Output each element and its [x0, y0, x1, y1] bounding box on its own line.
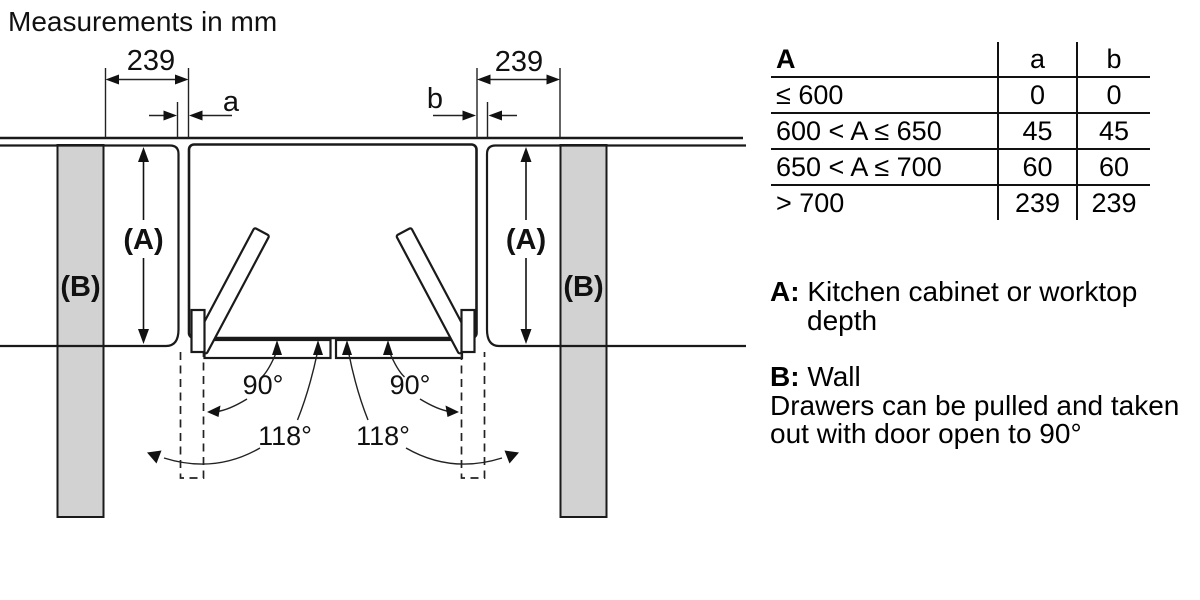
range-cell: 600 < A ≤ 650 — [771, 113, 998, 149]
table-row: > 700 239 239 — [771, 185, 1150, 220]
wall-label-right: (B) — [563, 271, 603, 303]
legend-b-key: B: — [770, 361, 800, 392]
table-row: 650 < A ≤ 700 60 60 — [771, 149, 1150, 185]
depth-label-right: (A) — [506, 224, 546, 256]
angle-118-right: 118° — [356, 421, 410, 451]
wall-label-left: (B) — [60, 271, 100, 303]
gap-a-label: a — [223, 86, 240, 118]
wall-left — [58, 145, 104, 517]
dim-left-value: 239 — [127, 45, 175, 77]
legend-depth-line1: A: Kitchen cabinet or worktop — [770, 278, 1200, 307]
table-row: 600 < A ≤ 650 45 45 — [771, 113, 1150, 149]
col-header-A: A — [771, 42, 998, 77]
dim-right-value: 239 — [495, 46, 543, 78]
b-cell: 239 — [1077, 185, 1150, 220]
col-header-a: a — [998, 42, 1077, 77]
fridge-installation-drawing: Measurements in mm 239 239 a b (A) (A) (… — [0, 0, 760, 600]
hinge-right — [462, 310, 475, 352]
angle-90-right: 90° — [390, 370, 431, 400]
gap-b-label: b — [427, 83, 443, 115]
legend-wall: B: Wall Drawers can be pulled and taken … — [770, 363, 1200, 449]
clearance-table: A a b ≤ 600 0 0 600 < A ≤ 650 45 45 650 … — [771, 42, 1150, 220]
legend-note-line2: out with door open to 90° — [770, 420, 1200, 449]
table-header-row: A a b — [771, 42, 1150, 77]
legend-a-text: Kitchen cabinet or worktop — [807, 276, 1137, 307]
b-cell: 0 — [1077, 77, 1150, 113]
angle-118-left: 118° — [258, 421, 312, 451]
legend-b-text: Wall — [807, 361, 860, 392]
range-cell: ≤ 600 — [771, 77, 998, 113]
dimension-239-left — [106, 68, 233, 138]
drawing-title: Measurements in mm — [8, 6, 277, 37]
b-cell: 45 — [1077, 113, 1150, 149]
table-row: ≤ 600 0 0 — [771, 77, 1150, 113]
legend-depth-line2: depth — [770, 307, 1200, 336]
wall-right — [561, 145, 607, 517]
a-cell: 60 — [998, 149, 1077, 185]
range-cell: 650 < A ≤ 700 — [771, 149, 998, 185]
legend-wall-line: B: Wall — [770, 363, 1200, 392]
angle-90-left: 90° — [243, 370, 284, 400]
legend-a-key: A: — [770, 276, 800, 307]
door-left-closed — [205, 340, 331, 358]
dimension-239-right — [433, 68, 560, 138]
range-cell: > 700 — [771, 185, 998, 220]
legend-note-line1: Drawers can be pulled and taken — [770, 392, 1200, 421]
a-cell: 239 — [998, 185, 1077, 220]
installation-diagram-page: Measurements in mm 239 239 a b (A) (A) (… — [0, 0, 1200, 600]
col-header-b: b — [1077, 42, 1150, 77]
door-right-90-dashed — [462, 352, 485, 478]
depth-label-left: (A) — [123, 224, 163, 256]
a-cell: 45 — [998, 113, 1077, 149]
legend-depth: A: Kitchen cabinet or worktop depth — [770, 278, 1200, 335]
a-cell: 0 — [998, 77, 1077, 113]
door-right-closed — [336, 340, 462, 358]
hinge-left — [192, 310, 205, 352]
fridge-body — [189, 145, 477, 339]
b-cell: 60 — [1077, 149, 1150, 185]
door-left-90-dashed — [181, 352, 204, 478]
